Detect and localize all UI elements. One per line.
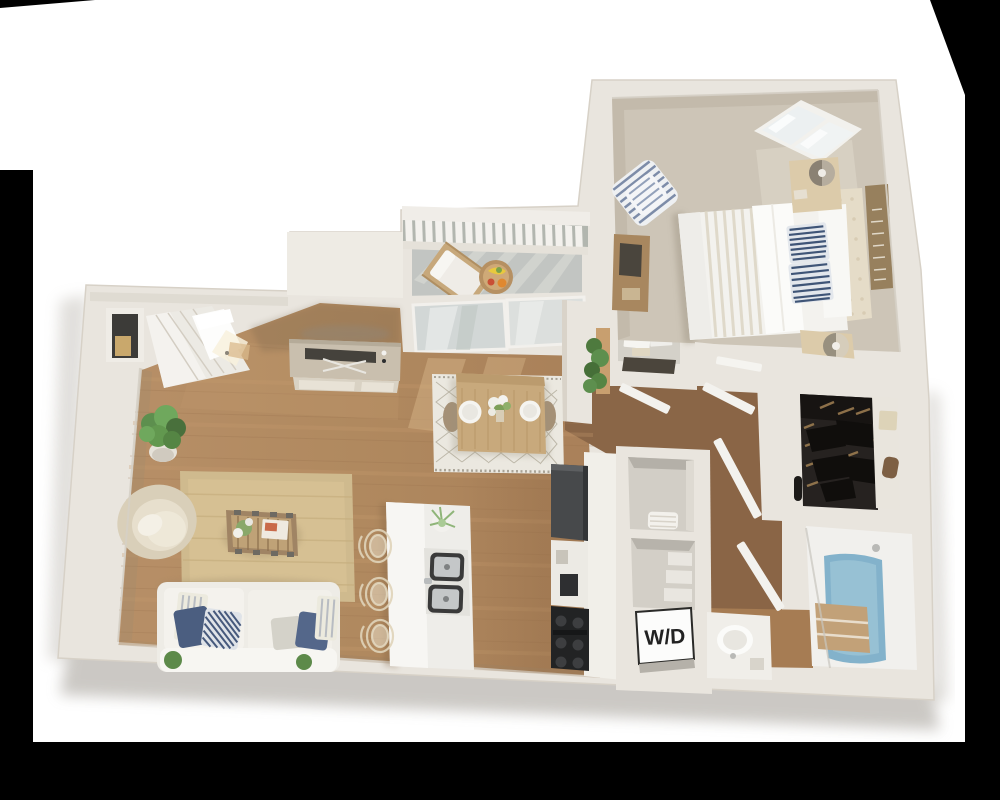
svg-text:W/D: W/D (644, 625, 686, 650)
